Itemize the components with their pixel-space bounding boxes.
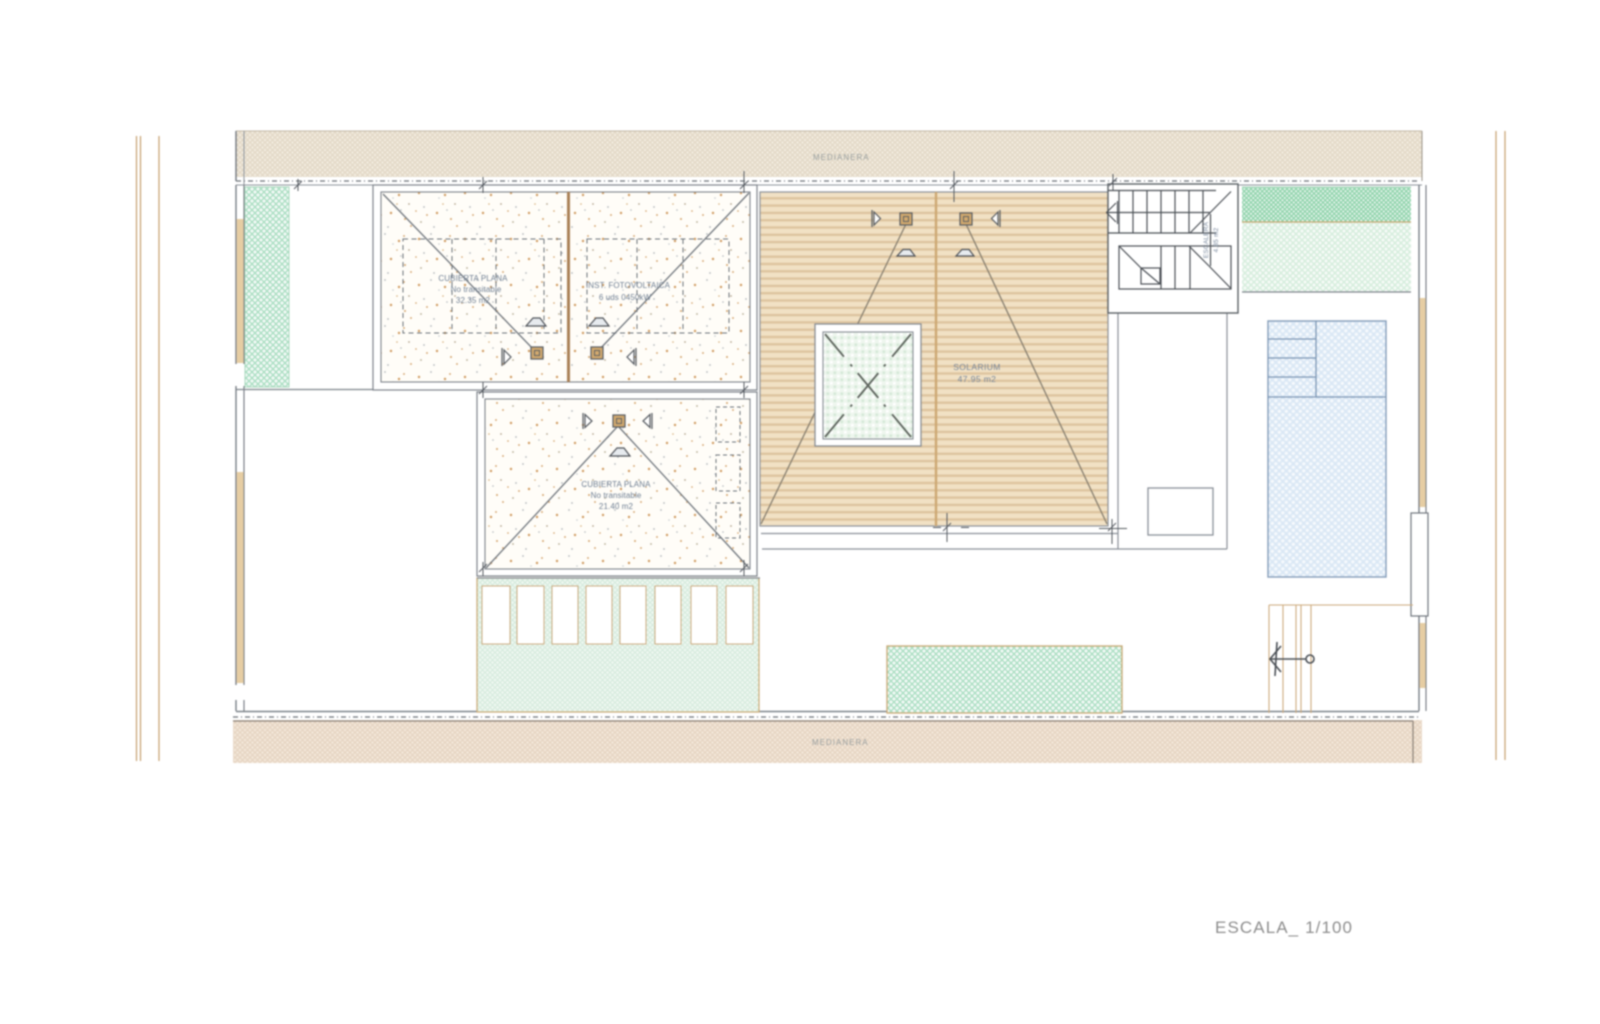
svg-text:21.40 m2: 21.40 m2: [599, 502, 634, 511]
svg-text:CUBIERTA PLANA: CUBIERTA PLANA: [581, 480, 651, 489]
svg-text:MEDIANERA: MEDIANERA: [813, 153, 870, 162]
svg-text:6 uds 0450kW: 6 uds 0450kW: [599, 293, 652, 302]
svg-text:47.95 m2: 47.95 m2: [958, 374, 997, 384]
svg-text:ESCALA_ 1/100: ESCALA_ 1/100: [1215, 918, 1353, 937]
svg-text:INST. FOTOVOLTAICA: INST. FOTOVOLTAICA: [586, 281, 671, 290]
svg-text:MEDIANERA: MEDIANERA: [812, 738, 869, 747]
svg-text:No transitable: No transitable: [451, 285, 502, 294]
svg-text:CUBIERTA PLANA: CUBIERTA PLANA: [438, 274, 508, 283]
svg-text:No transitable: No transitable: [591, 491, 642, 500]
svg-text:SOLARIUM: SOLARIUM: [953, 362, 1001, 372]
svg-text:ESCALERA: ESCALERA: [1203, 221, 1210, 258]
svg-text:4.85 m2: 4.85 m2: [1213, 227, 1220, 252]
svg-text:32.35 m2: 32.35 m2: [456, 296, 491, 305]
